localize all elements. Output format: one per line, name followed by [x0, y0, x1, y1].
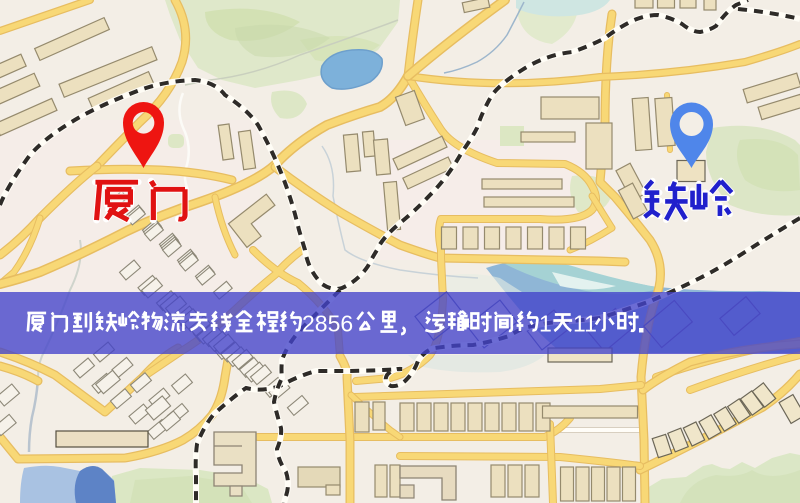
svg-text:2856: 2856 [302, 311, 353, 337]
svg-text:1: 1 [539, 311, 552, 337]
svg-text:11: 11 [573, 311, 597, 337]
